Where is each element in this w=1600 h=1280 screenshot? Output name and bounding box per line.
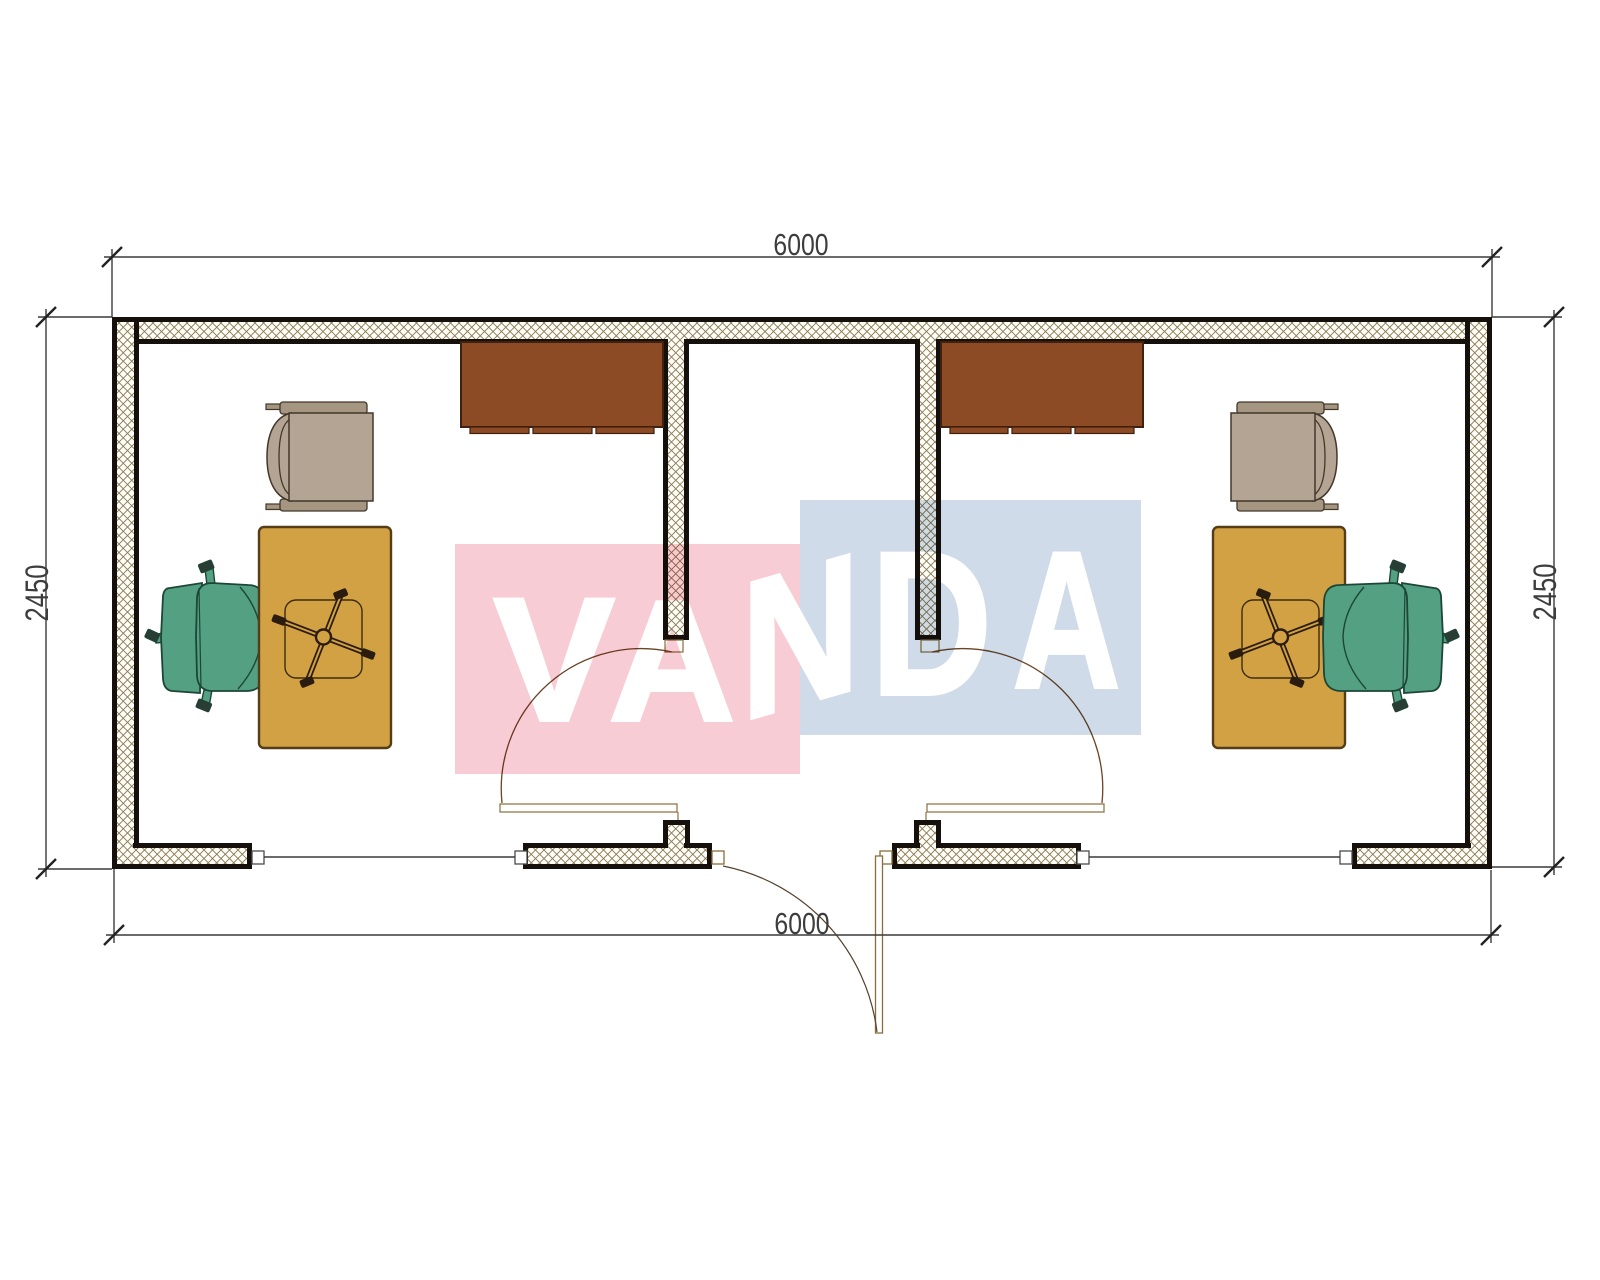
svg-text:A: A: [1013, 512, 1120, 729]
svg-text:6000: 6000: [774, 906, 829, 940]
svg-text:2450: 2450: [1528, 564, 1563, 621]
svg-text:N: N: [741, 510, 860, 763]
svg-text:6000: 6000: [773, 227, 828, 261]
svg-text:2450: 2450: [20, 565, 55, 622]
svg-text:V: V: [494, 561, 614, 757]
